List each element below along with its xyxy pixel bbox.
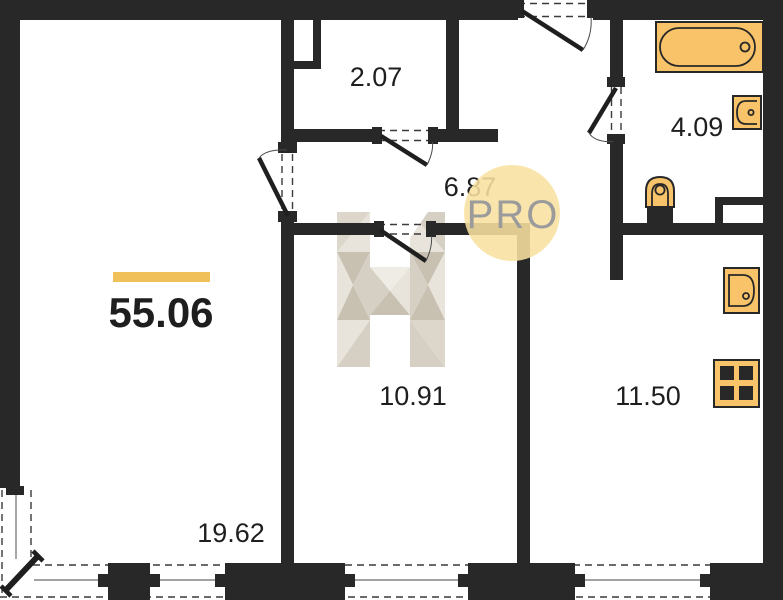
window-stub — [344, 574, 355, 587]
room-label-bathroom: 4.09 — [671, 112, 724, 142]
window-stub — [458, 574, 469, 587]
wall-bathroom-lower — [610, 144, 623, 280]
balcony-door — [1, 551, 43, 596]
total-area: 55.06 — [108, 272, 213, 336]
wall-top-left — [0, 0, 518, 20]
wall-closet-bottom-left — [294, 129, 378, 142]
wall-top-right — [593, 0, 783, 20]
window-pier-2 — [225, 563, 345, 600]
wall-closet-right — [446, 20, 459, 129]
living-room-door — [259, 142, 297, 222]
wall-bathroom-bottom — [623, 223, 763, 235]
toilet-icon — [646, 177, 674, 223]
wall-living-divider-upper — [281, 20, 294, 142]
window-stub — [149, 574, 160, 587]
wall-shaft-left — [715, 197, 723, 223]
room-label-kitchen: 11.50 — [615, 381, 681, 411]
room-label-living-room: 19.62 — [197, 518, 265, 548]
wall-bedroom-top-left — [294, 223, 378, 235]
stove-icon — [714, 360, 759, 407]
floor-plan: 2.07 6.87 4.09 10.91 11.50 19.62 55.06 P… — [0, 0, 783, 600]
total-area-label: 55.06 — [108, 289, 213, 336]
window-stub — [215, 574, 226, 587]
wall-niche-bottom — [294, 61, 321, 69]
wall-right — [763, 0, 783, 600]
accent-bar — [113, 272, 210, 282]
closet-door — [372, 127, 438, 165]
bathroom-door — [589, 77, 625, 144]
bath-sink-icon — [733, 96, 761, 129]
pro-badge: PRO — [464, 165, 560, 261]
window-pier-3 — [468, 563, 575, 600]
pro-badge-label: PRO — [467, 193, 560, 237]
bathtub-icon — [656, 22, 763, 72]
wall-closet-bottom-right — [430, 129, 498, 142]
window-pier-1 — [108, 563, 150, 600]
window-stub — [98, 574, 109, 587]
window-stub — [574, 574, 585, 587]
wall-kitchen-divider — [517, 229, 530, 563]
wall-left — [0, 0, 20, 488]
window-stub — [700, 574, 711, 587]
room-label-bedroom: 10.91 — [379, 381, 447, 411]
doors — [1, 0, 625, 596]
room-label-closet: 2.07 — [350, 62, 403, 92]
wall-bathroom-upper — [610, 20, 623, 77]
entrance-door — [512, 0, 599, 50]
wall-living-divider-lower — [281, 222, 294, 563]
window-pier-4 — [710, 563, 783, 600]
kitchen-sink-icon — [724, 268, 759, 313]
window-stub — [6, 486, 24, 495]
